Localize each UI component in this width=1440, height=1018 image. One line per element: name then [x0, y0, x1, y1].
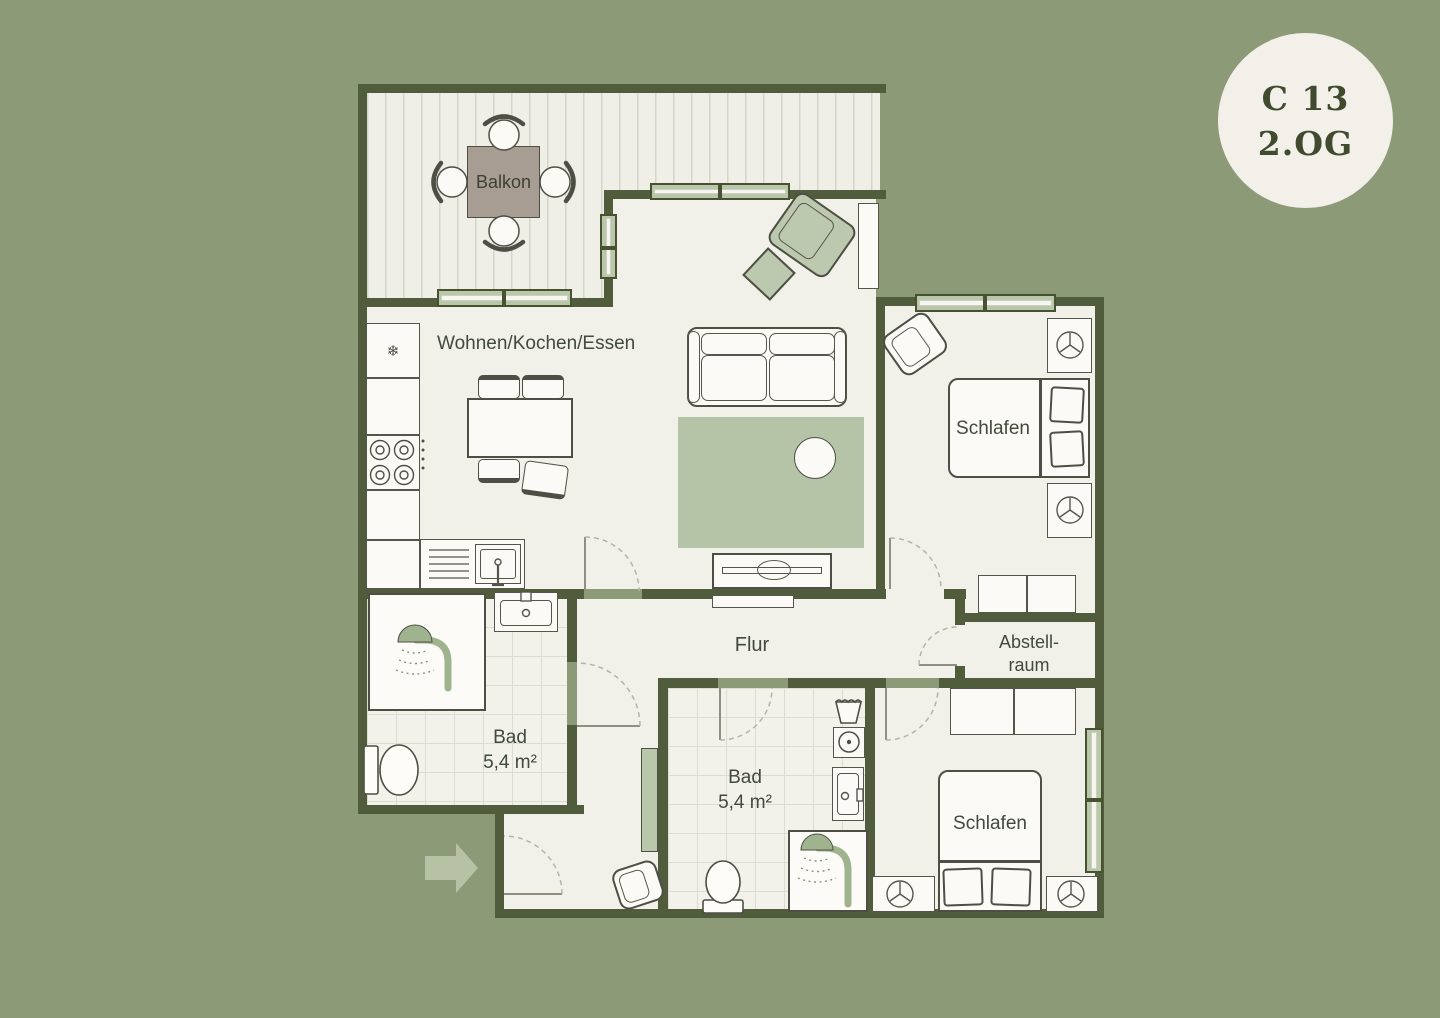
window-mullion [1087, 798, 1101, 802]
living-room-label: Wohnen/Kochen/Essen [437, 331, 635, 356]
window-balcony-kitchen [437, 289, 572, 307]
stove [366, 435, 420, 490]
chair-cushion [889, 324, 933, 369]
unit-badge: C 13 2.OG [1218, 33, 1393, 208]
wardrobe-top-bedroom [978, 575, 1076, 613]
kitchen-sink-basin [475, 544, 521, 584]
wall-bath-left-bottom [358, 805, 584, 814]
wall-entry-left [495, 805, 504, 918]
wall-shelf [712, 595, 794, 608]
dining-chair [521, 460, 569, 500]
bath-left-sink [494, 592, 558, 632]
wall-bath-left-east-b [567, 725, 577, 814]
rug [678, 417, 864, 548]
tv-stand [757, 560, 791, 580]
hall-label: Flur [712, 633, 792, 658]
dining-table [467, 398, 573, 458]
bath-left-name: Bad [460, 725, 560, 750]
floor-plan-page: { "badge": { "unit": "C 13", "floor": "2… [0, 0, 1440, 1018]
sofa-back-cushion [701, 333, 767, 355]
unit-floor: 2.OG [1258, 121, 1353, 166]
window-mullion [718, 185, 722, 198]
bath-left-area: 5,4 m² [460, 750, 560, 775]
kitchen-cabinet [366, 378, 420, 435]
sofa-seat-cushion [769, 355, 835, 401]
shower-left [368, 593, 486, 711]
radiator-living [858, 203, 879, 289]
window-bedroom-bottom [1085, 728, 1103, 873]
radiator-corridor [641, 748, 658, 852]
sink-basin-inner [837, 773, 859, 815]
bath-middle-sink [832, 767, 864, 821]
bed-divider [938, 860, 1042, 863]
bath-middle-label: Bad 5,4 m² [695, 765, 795, 815]
dining-chair [522, 375, 564, 399]
wall-storage-west-b [955, 666, 965, 688]
window-mullion [502, 291, 506, 305]
balcony-table: Balkon [467, 146, 540, 218]
pillow [990, 867, 1031, 906]
window-mullion [983, 296, 987, 310]
kitchen-cabinet [366, 490, 420, 540]
unit-number: C 13 [1262, 76, 1350, 121]
pillow [1049, 430, 1085, 468]
storage-line1: Abstell- [977, 631, 1081, 654]
tv-sideboard [712, 553, 832, 589]
bedroom-bottom-label: Schlafen [938, 811, 1042, 836]
storage-label: Abstell- raum [977, 631, 1081, 677]
coffee-table [794, 437, 836, 479]
wall-storage-north [955, 613, 1104, 622]
nightstand [1047, 483, 1092, 538]
bath-left-label: Bad 5,4 m² [460, 725, 560, 775]
bedroom-top-label: Schlafen [943, 416, 1043, 441]
wardrobe-divider [1026, 576, 1028, 612]
bath-middle-name: Bad [695, 765, 795, 790]
nightstand [1046, 876, 1098, 912]
sofa-armrest [687, 331, 700, 403]
window-living-top [650, 183, 790, 200]
shower-middle [788, 830, 868, 912]
pillow [942, 867, 983, 906]
balcony-label: Balkon [476, 172, 531, 193]
bath-middle-area: 5,4 m² [695, 790, 795, 815]
sofa-seat-cushion [701, 355, 767, 401]
sink-basin-inner [480, 549, 516, 579]
window-balcony-side [600, 214, 617, 279]
kitchen-cabinet [366, 540, 420, 589]
dining-chair [478, 375, 520, 399]
chair-cushion [617, 868, 651, 905]
sofa-back-cushion [769, 333, 835, 355]
sofa-armrest [834, 331, 847, 403]
storage-line2: raum [977, 654, 1081, 677]
wall-bath-left-east-a [567, 589, 577, 662]
fridge-snowflake-icon: ❄ [387, 342, 400, 360]
sink-basin-inner [500, 600, 552, 626]
wardrobe-divider [1013, 689, 1015, 734]
wall-outer-top [358, 84, 886, 93]
sofa [687, 327, 847, 407]
dining-chair [478, 459, 520, 483]
entrance-arrow-icon [425, 843, 478, 893]
window-bedroom-top [915, 294, 1056, 312]
nightstand [1047, 318, 1092, 373]
pillow [1049, 386, 1085, 424]
window-mullion [602, 246, 615, 250]
washing-machine [833, 727, 865, 758]
fridge: ❄ [366, 323, 420, 378]
wardrobe-bottom-bedroom [950, 688, 1076, 735]
armchair-cushion [776, 200, 837, 262]
nightstand [872, 876, 935, 912]
